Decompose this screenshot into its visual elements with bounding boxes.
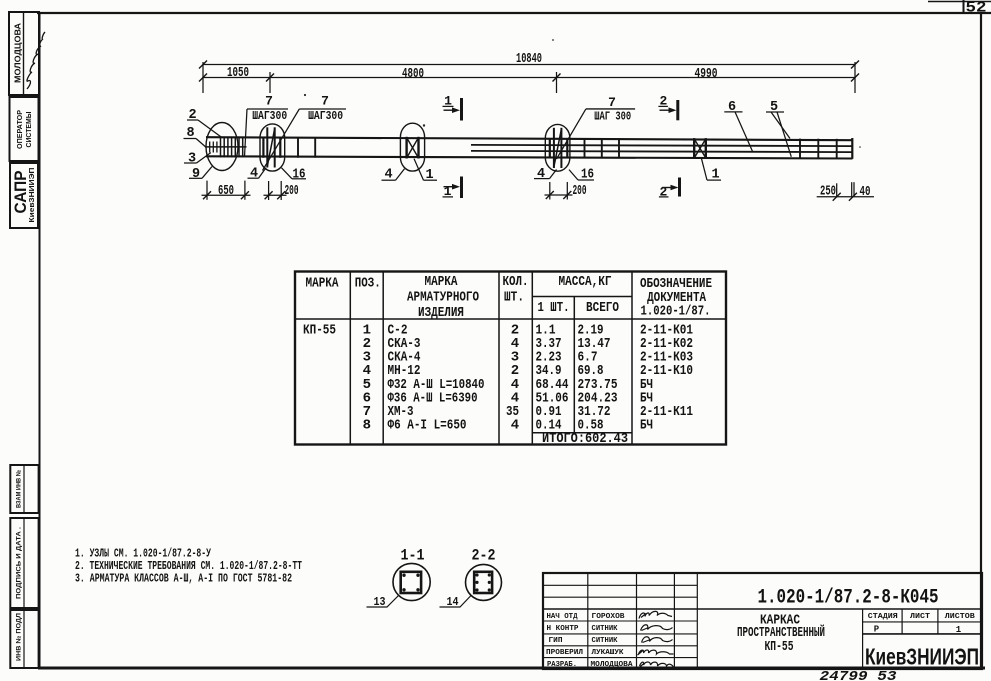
svg-text:3. АРМАТУРА КЛАССОВ А-Ш, А-I П: 3. АРМАТУРА КЛАССОВ А-Ш, А-I ПО ГОСТ 578… [75,572,292,586]
svg-text:ИТОГО:602.43: ИТОГО:602.43 [542,431,628,447]
svg-text:ШАГ300: ШАГ300 [252,109,287,123]
svg-text:АРМАТУРНОГО: АРМАТУРНОГО [407,290,479,306]
svg-text:2-2: 2-2 [472,547,496,565]
svg-text:1 ШТ.: 1 ШТ. [538,300,570,316]
svg-text:2: 2 [188,108,196,123]
svg-text:ЛИСТОВ: ЛИСТОВ [945,613,976,621]
svg-text:ГОРОХОВ: ГОРОХОВ [592,613,626,621]
svg-text:200: 200 [285,183,299,199]
svg-text:4: 4 [537,167,545,182]
svg-text:НАЧ ОТД: НАЧ ОТД [547,613,579,621]
svg-text:1: 1 [956,625,962,635]
svg-text:МОЛОДЦОВА: МОЛОДЦОВА [591,661,634,669]
svg-text:ЛУКАШУК: ЛУКАШУК [592,649,625,657]
svg-text:КП-55: КП-55 [303,323,336,339]
svg-text:СИТНИК: СИТНИК [592,637,619,645]
svg-text:1.020-1/87.2-8-К045: 1.020-1/87.2-8-К045 [758,587,939,610]
svg-text:ВЗАМ ИНВ №: ВЗАМ ИНВ № [16,470,23,508]
svg-text:16: 16 [293,167,306,182]
svg-text:52: 52 [966,0,987,17]
svg-text:БЧ: БЧ [640,418,653,434]
svg-text:1050: 1050 [227,65,249,81]
svg-text:Н КОНТР: Н КОНТР [547,625,579,633]
svg-text:МАРКА: МАРКА [306,276,339,292]
svg-text:ПРОВЕРИЛ: ПРОВЕРИЛ [546,649,583,657]
svg-text:ПРОСТРАНСТВЕННЫЙ: ПРОСТРАНСТВЕННЫЙ [737,625,825,641]
svg-text:КиевЗНИИЭП: КиевЗНИИЭП [865,644,979,670]
svg-text:Р: Р [874,625,880,635]
svg-text:ВСЕГО: ВСЕГО [586,300,619,316]
svg-text:ЛИСТ: ЛИСТ [910,613,930,621]
svg-text:ИНВ № ПОДЛ: ИНВ № ПОДЛ [16,613,23,661]
svg-text:9: 9 [192,167,200,182]
svg-text:ШТ.: ШТ. [504,290,524,306]
svg-text:40: 40 [860,184,871,200]
svg-text:САПР: САПР [11,171,30,214]
svg-text:1.020-1/87.: 1.020-1/87. [641,304,711,320]
svg-text:КиевЗНИИЭП: КиевЗНИИЭП [29,168,36,223]
svg-text:КОЛ.: КОЛ. [503,274,529,290]
svg-text:ГИП: ГИП [549,637,563,645]
svg-text:МАССА,КГ: МАССА,КГ [559,274,612,290]
svg-text:250: 250 [820,184,836,200]
svg-text:8: 8 [363,418,371,434]
svg-text:24799 53: 24799 53 [820,669,898,681]
svg-text:КП-55: КП-55 [765,640,794,655]
svg-text:14: 14 [447,595,459,609]
svg-text:4990: 4990 [695,66,718,82]
svg-text:МАРКА: МАРКА [425,274,458,290]
svg-text:650: 650 [218,183,234,199]
svg-text:ПОЗ.: ПОЗ. [355,276,381,292]
svg-text:3: 3 [188,152,196,167]
svg-text:СИСТЕМЫ: СИСТЕМЫ [26,111,33,147]
svg-text:ИЗДЕЛИЯ: ИЗДЕЛИЯ [418,305,464,321]
svg-text:СТАДИЯ: СТАДИЯ [868,613,898,621]
svg-text:4: 4 [250,167,258,182]
svg-text:ШАГ 300: ШАГ 300 [594,109,631,123]
svg-text:4800: 4800 [402,66,424,82]
svg-text:7: 7 [608,95,616,110]
svg-text:РАЗРАБ.: РАЗРАБ. [547,661,577,669]
svg-text:Ф6 А-I L=650: Ф6 А-I L=650 [388,418,467,434]
svg-text:ШАГ300: ШАГ300 [308,109,343,123]
svg-text:СИТНИК: СИТНИК [592,625,619,633]
svg-text:4: 4 [511,418,519,434]
svg-text:1-1: 1-1 [401,547,425,565]
svg-text:13: 13 [374,595,386,609]
svg-text:МОЛОДЦОВА: МОЛОДЦОВА [14,23,23,83]
svg-text:10840: 10840 [516,51,542,67]
svg-text:7: 7 [321,94,329,109]
svg-text:200: 200 [573,183,587,199]
svg-text:ПОДПИСЬ И ДАТА .: ПОДПИСЬ И ДАТА . [16,527,23,599]
svg-text:ОПЕРАТОР: ОПЕРАТОР [17,110,24,149]
svg-text:7: 7 [265,94,273,109]
